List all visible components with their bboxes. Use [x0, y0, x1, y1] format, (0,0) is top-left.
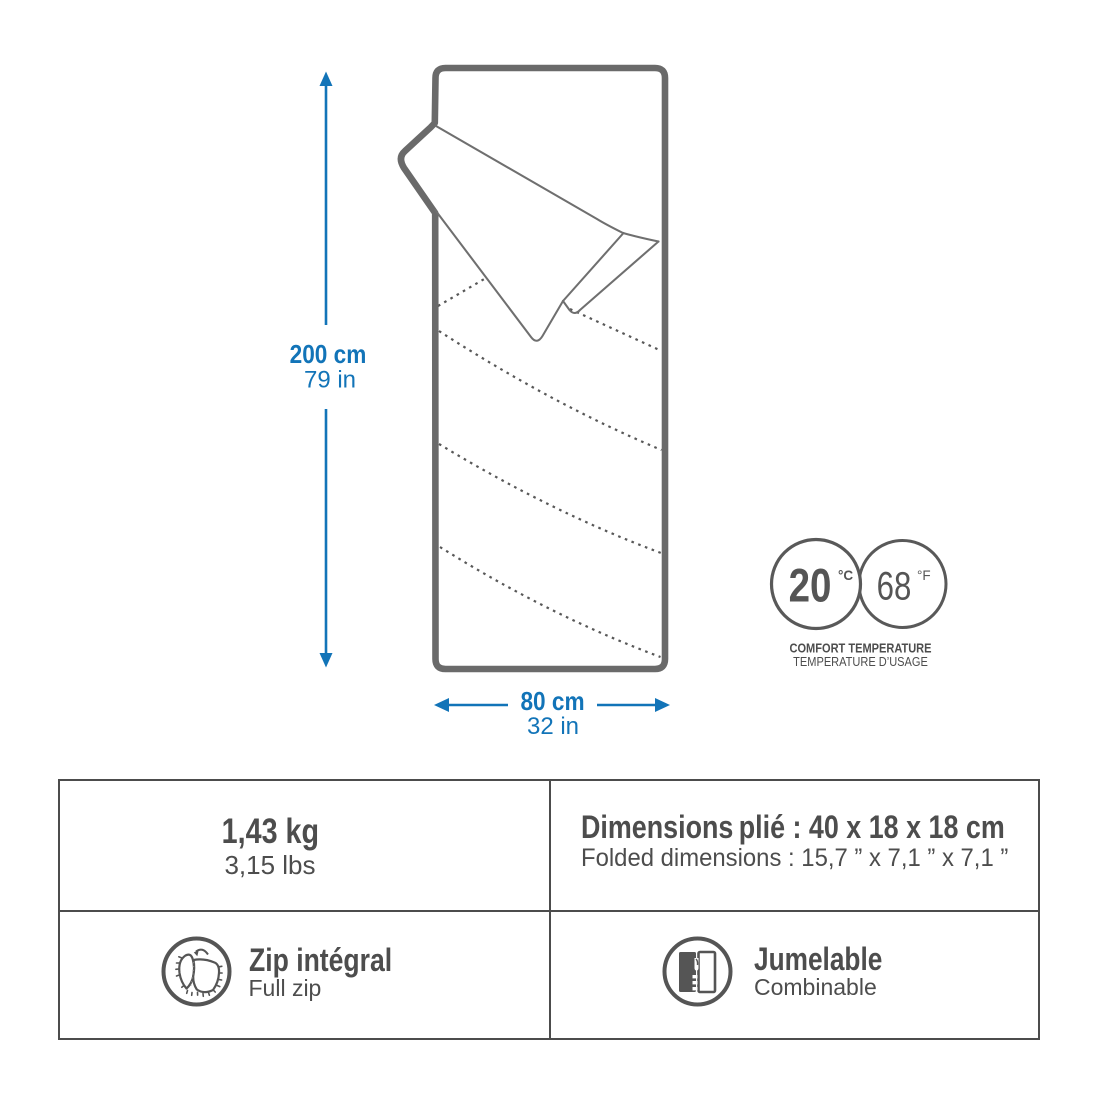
svg-text:TEMPERATURE D’USAGE: TEMPERATURE D’USAGE — [793, 654, 928, 669]
svg-text:°C: °C — [838, 568, 853, 583]
svg-text:68: 68 — [877, 564, 912, 609]
svg-text:79 in: 79 in — [304, 367, 356, 394]
svg-text:200 cm: 200 cm — [290, 341, 367, 370]
svg-text:20: 20 — [789, 560, 832, 612]
svg-text:°F: °F — [917, 568, 931, 583]
svg-text:32 in: 32 in — [527, 713, 579, 740]
